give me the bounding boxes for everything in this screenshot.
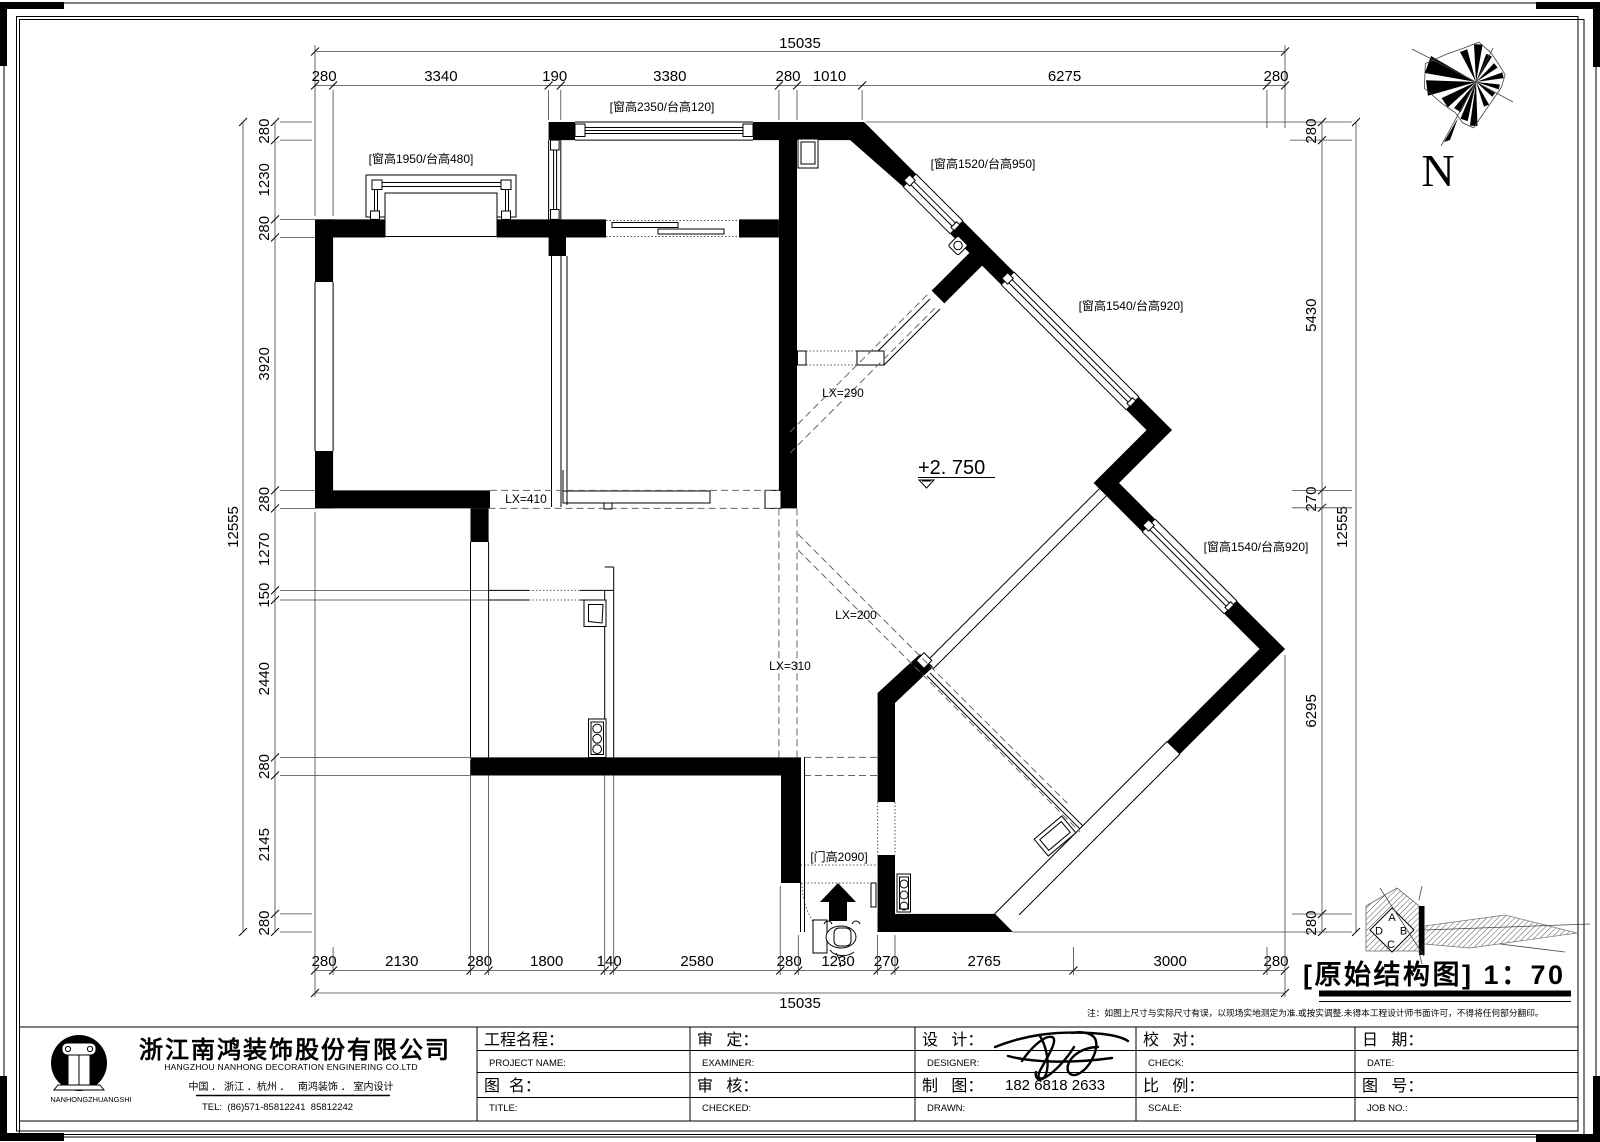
svg-text:5430: 5430: [1303, 299, 1320, 332]
svg-text:图 名：: 图 名：: [484, 1077, 541, 1095]
svg-text:设 计：: 设 计：: [922, 1031, 983, 1049]
svg-text:6295: 6295: [1303, 694, 1320, 727]
svg-text:12555: 12555: [1334, 506, 1351, 548]
svg-text:[窗高1520/台高950]: [窗高1520/台高950]: [931, 156, 1036, 171]
svg-text:SCALE:: SCALE:: [1148, 1103, 1182, 1114]
svg-text:LX=410: LX=410: [505, 492, 547, 506]
svg-text:2145: 2145: [256, 828, 273, 861]
svg-text:NANHONGZHUANGSHI: NANHONGZHUANGSHI: [50, 1095, 131, 1104]
svg-text:1230: 1230: [256, 163, 273, 196]
svg-text:3340: 3340: [424, 68, 457, 85]
svg-text:[原始结构图] 1：70: [原始结构图] 1：70: [1303, 959, 1566, 990]
svg-text:LX=310: LX=310: [769, 659, 811, 673]
svg-text:DESIGNER:: DESIGNER:: [927, 1058, 979, 1069]
svg-text:1270: 1270: [256, 533, 273, 566]
svg-text:JOB NO.:: JOB NO.:: [1367, 1103, 1408, 1114]
svg-text:3000: 3000: [1154, 953, 1187, 970]
svg-text:D: D: [1375, 926, 1383, 938]
svg-text:A: A: [1388, 912, 1396, 924]
svg-text:3380: 3380: [653, 68, 686, 85]
svg-text:工程名程：: 工程名程：: [484, 1031, 564, 1049]
svg-text:HANGZHOU NANHONG DECORATION: HANGZHOU NANHONG DECORATION ENGINERING C…: [164, 1062, 418, 1072]
svg-text:2130: 2130: [385, 953, 418, 970]
svg-text:12555: 12555: [225, 506, 242, 548]
svg-text:280: 280: [312, 68, 337, 85]
svg-text:+2. 750: +2. 750: [918, 457, 985, 479]
svg-text:DATE:: DATE:: [1367, 1058, 1394, 1069]
svg-text:B: B: [1400, 926, 1407, 938]
svg-text:280: 280: [256, 119, 273, 144]
svg-text:校 对：: 校 对：: [1143, 1031, 1204, 1049]
svg-text:1010: 1010: [813, 68, 846, 85]
svg-text:注：如图上尺寸与实际尺寸有误，以现场实地测定为准.或按实调整: 注：如图上尺寸与实际尺寸有误，以现场实地测定为准.或按实调整.未得本工程设计师书…: [1087, 1007, 1544, 1018]
svg-text:[窗高1540/台高920]: [窗高1540/台高920]: [1204, 539, 1309, 554]
svg-text:[窗高1540/台高920]: [窗高1540/台高920]: [1079, 298, 1184, 313]
svg-text:DRAWN:: DRAWN:: [927, 1103, 965, 1114]
svg-text:CHECK:: CHECK:: [1148, 1058, 1184, 1069]
svg-text:EXAMINER:: EXAMINER:: [702, 1058, 754, 1069]
svg-text:N: N: [1421, 145, 1454, 196]
svg-text:2765: 2765: [968, 953, 1001, 970]
svg-text:制 图：: 制 图：: [922, 1077, 983, 1095]
svg-text:6275: 6275: [1048, 68, 1081, 85]
svg-text:LX=290: LX=290: [822, 386, 864, 400]
svg-text:2440: 2440: [256, 662, 273, 695]
svg-text:审 定：: 审 定：: [697, 1031, 758, 1049]
svg-text:PROJECT NAME:: PROJECT NAME:: [489, 1058, 566, 1069]
svg-text:190: 190: [542, 68, 567, 85]
svg-text:280: 280: [256, 910, 273, 935]
svg-text:CHECKED:: CHECKED:: [702, 1103, 751, 1114]
svg-text:[窗高1950/台高480]: [窗高1950/台高480]: [369, 151, 474, 166]
svg-text:280: 280: [1263, 68, 1288, 85]
svg-text:280: 280: [256, 216, 273, 241]
svg-text:15035: 15035: [779, 35, 821, 52]
svg-text:LX=200: LX=200: [835, 608, 877, 622]
svg-text:图 号：: 图 号：: [1362, 1077, 1423, 1095]
svg-text:TITLE:: TITLE:: [489, 1103, 518, 1114]
svg-text:C: C: [1387, 939, 1395, 951]
svg-text:3920: 3920: [256, 347, 273, 380]
svg-text:[门高2090]: [门高2090]: [810, 849, 867, 864]
svg-text:280: 280: [256, 487, 273, 512]
svg-text:280: 280: [775, 68, 800, 85]
svg-text:1800: 1800: [530, 953, 563, 970]
svg-text:审 核：: 审 核：: [697, 1077, 758, 1095]
svg-text:比 例：: 比 例：: [1143, 1077, 1204, 1095]
svg-text:[窗高2350/台高120]: [窗高2350/台高120]: [610, 99, 715, 114]
svg-text:140: 140: [597, 953, 622, 970]
svg-text:中国 ． 浙江 ．杭州 ． 南鸿装饰 ． 室内设计: 中国 ． 浙江 ．杭州 ． 南鸿装饰 ． 室内设计: [188, 1080, 393, 1093]
svg-text:TEL: (86)571-85812241 858122: TEL: (86)571-85812241 85812242: [202, 1102, 353, 1113]
svg-text:日 期：: 日 期：: [1362, 1031, 1423, 1049]
svg-text:浙江南鸿装饰股份有限公司: 浙江南鸿装饰股份有限公司: [139, 1036, 451, 1064]
svg-text:280: 280: [256, 754, 273, 779]
svg-text:182 6818 2633: 182 6818 2633: [1005, 1077, 1105, 1094]
svg-text:15035: 15035: [779, 995, 821, 1012]
svg-text:2580: 2580: [680, 953, 713, 970]
svg-text:150: 150: [256, 583, 273, 608]
